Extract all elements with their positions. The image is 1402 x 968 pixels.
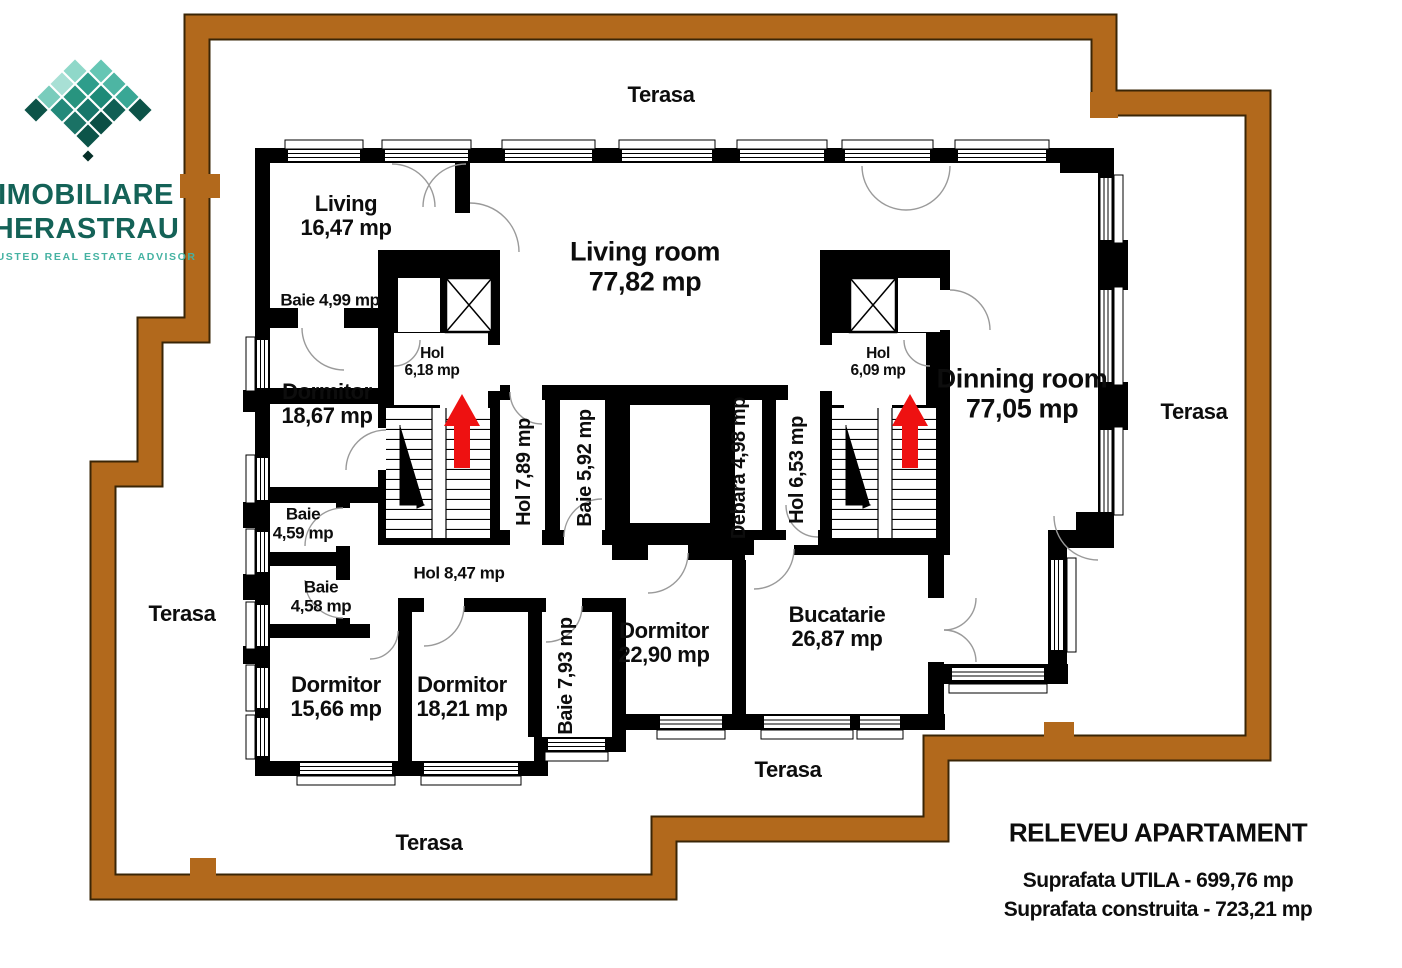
room-area: 77,82 mp — [570, 267, 720, 297]
floor-plan-page: IMOBILIARE HERASTRAU TRUSTED REAL ESTATE… — [0, 0, 1402, 968]
logo-tagline: TRUSTED REAL ESTATE ADVISOR — [0, 251, 197, 263]
room-area: 6,09 mp — [851, 362, 906, 379]
terrace-label-top: Terasa — [628, 83, 695, 107]
stairs-right — [832, 408, 936, 538]
room-area: 4,58 mp — [291, 597, 352, 616]
room-name: Baie — [273, 505, 334, 524]
room-label-hol-789: Hol 7,89 mp — [513, 418, 535, 526]
built-area-line: Suprafata construita - 723,21 mp — [1004, 898, 1312, 922]
room-label-hol-653: Hol 6,53 mp — [786, 416, 808, 524]
plan-title: RELEVEU APARTAMENT — [1009, 818, 1307, 849]
room-label-dormitor-1867: Dormitor 18,67 mp — [282, 380, 373, 428]
room-label-baie-459: Baie 4,59 mp — [273, 505, 334, 542]
terrace-label-bottom-inner: Terasa — [755, 758, 822, 782]
room-name: Living room — [570, 237, 720, 267]
room-label-debara-498: Debara 4,98 mp — [728, 397, 750, 539]
room-label-baie-458: Baie 4,58 mp — [291, 578, 352, 615]
room-name: Dinning room — [937, 364, 1108, 394]
terrace-label-right: Terasa — [1161, 400, 1228, 424]
room-label-hol-609: Hol 6,09 mp — [851, 345, 906, 379]
room-label-dinning-room: Dinning room 77,05 mp — [937, 364, 1108, 423]
logo-icon — [23, 58, 153, 163]
room-name: Dormitor — [417, 673, 508, 697]
room-label-hol-618: Hol 6,18 mp — [405, 345, 460, 379]
room-name: Baie — [291, 578, 352, 597]
elevator-left-icon — [446, 278, 492, 332]
room-label-dormitor-2290: Dormitor 22,90 mp — [619, 619, 710, 667]
room-area: 16,47 mp — [301, 216, 392, 240]
elevator-right-icon — [850, 278, 896, 332]
room-area: 18,67 mp — [282, 404, 373, 428]
room-name: Dormitor — [619, 619, 710, 643]
room-label-baie-499: Baie 4,99 mp — [280, 292, 379, 311]
room-name: Bucatarie — [789, 603, 886, 627]
room-label-living-room: Living room 77,82 mp — [570, 237, 720, 296]
logo-line2: HERASTRAU — [0, 212, 179, 246]
room-name: Hol — [405, 345, 460, 362]
room-label-dormitor-1566: Dormitor 15,66 mp — [291, 673, 382, 721]
room-label-hol-847: Hol 8,47 mp — [413, 565, 504, 584]
room-label-baie-592: Baie 5,92 mp — [574, 409, 596, 527]
room-name: Dormitor — [291, 673, 382, 697]
usable-area-line: Suprafata UTILA - 699,76 mp — [1023, 869, 1293, 893]
room-area: 18,21 mp — [417, 697, 508, 721]
room-name: Living — [301, 192, 392, 216]
logo-line1: IMOBILIARE — [0, 178, 179, 212]
room-label-living-small: Living 16,47 mp — [301, 192, 392, 240]
room-name: Hol — [851, 345, 906, 362]
room-area: 4,59 mp — [273, 524, 334, 543]
room-label-dormitor-1821: Dormitor 18,21 mp — [417, 673, 508, 721]
terrace-label-bottom-outer: Terasa — [396, 831, 463, 855]
room-area: 6,18 mp — [405, 362, 460, 379]
room-area: 22,90 mp — [619, 643, 710, 667]
terrace-label-left: Terasa — [149, 602, 216, 626]
stairs-left — [386, 408, 490, 538]
room-label-bucatarie: Bucatarie 26,87 mp — [789, 603, 886, 651]
room-area: 77,05 mp — [937, 394, 1108, 424]
logo-wordmark: IMOBILIARE HERASTRAU — [0, 178, 179, 246]
room-name: Dormitor — [282, 380, 373, 404]
room-area: 15,66 mp — [291, 697, 382, 721]
room-label-baie-793: Baie 7,93 mp — [555, 617, 577, 735]
room-area: 26,87 mp — [789, 627, 886, 651]
